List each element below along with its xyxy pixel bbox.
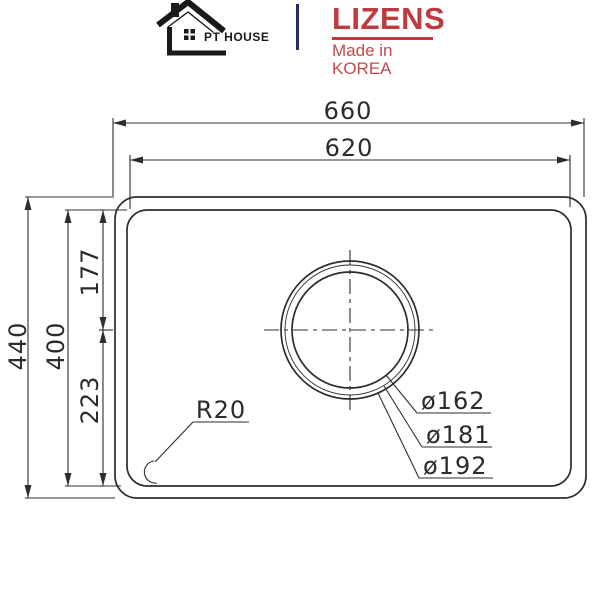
dimension-lines (28, 123, 584, 498)
dim-drain-dia-1: ø162 (421, 387, 486, 415)
extension-lines (25, 118, 584, 498)
dim-overall-width: 660 (324, 97, 373, 125)
dim-drain-dia-3: ø192 (423, 452, 488, 480)
page: PT HOUSE LIZENS Made in KOREA (0, 0, 600, 600)
dim-drain-from-top: 177 (76, 248, 104, 297)
dim-inner-height: 400 (42, 322, 70, 371)
dim-drain-dia-2: ø181 (426, 421, 491, 449)
sink-dimension-drawing: 660 620 440 400 177 223 R20 ø162 ø181 ø1… (0, 0, 600, 600)
dimension-arrows (25, 120, 585, 499)
dim-overall-height: 440 (4, 322, 32, 371)
drain-hole (264, 250, 436, 415)
sink-basin-edge (127, 210, 571, 486)
dim-inner-width: 620 (325, 134, 374, 162)
dim-drain-from-bottom: 223 (76, 376, 104, 425)
dim-corner-radius: R20 (196, 396, 246, 424)
radius-leader (144, 422, 249, 483)
radius-arc (144, 461, 157, 483)
